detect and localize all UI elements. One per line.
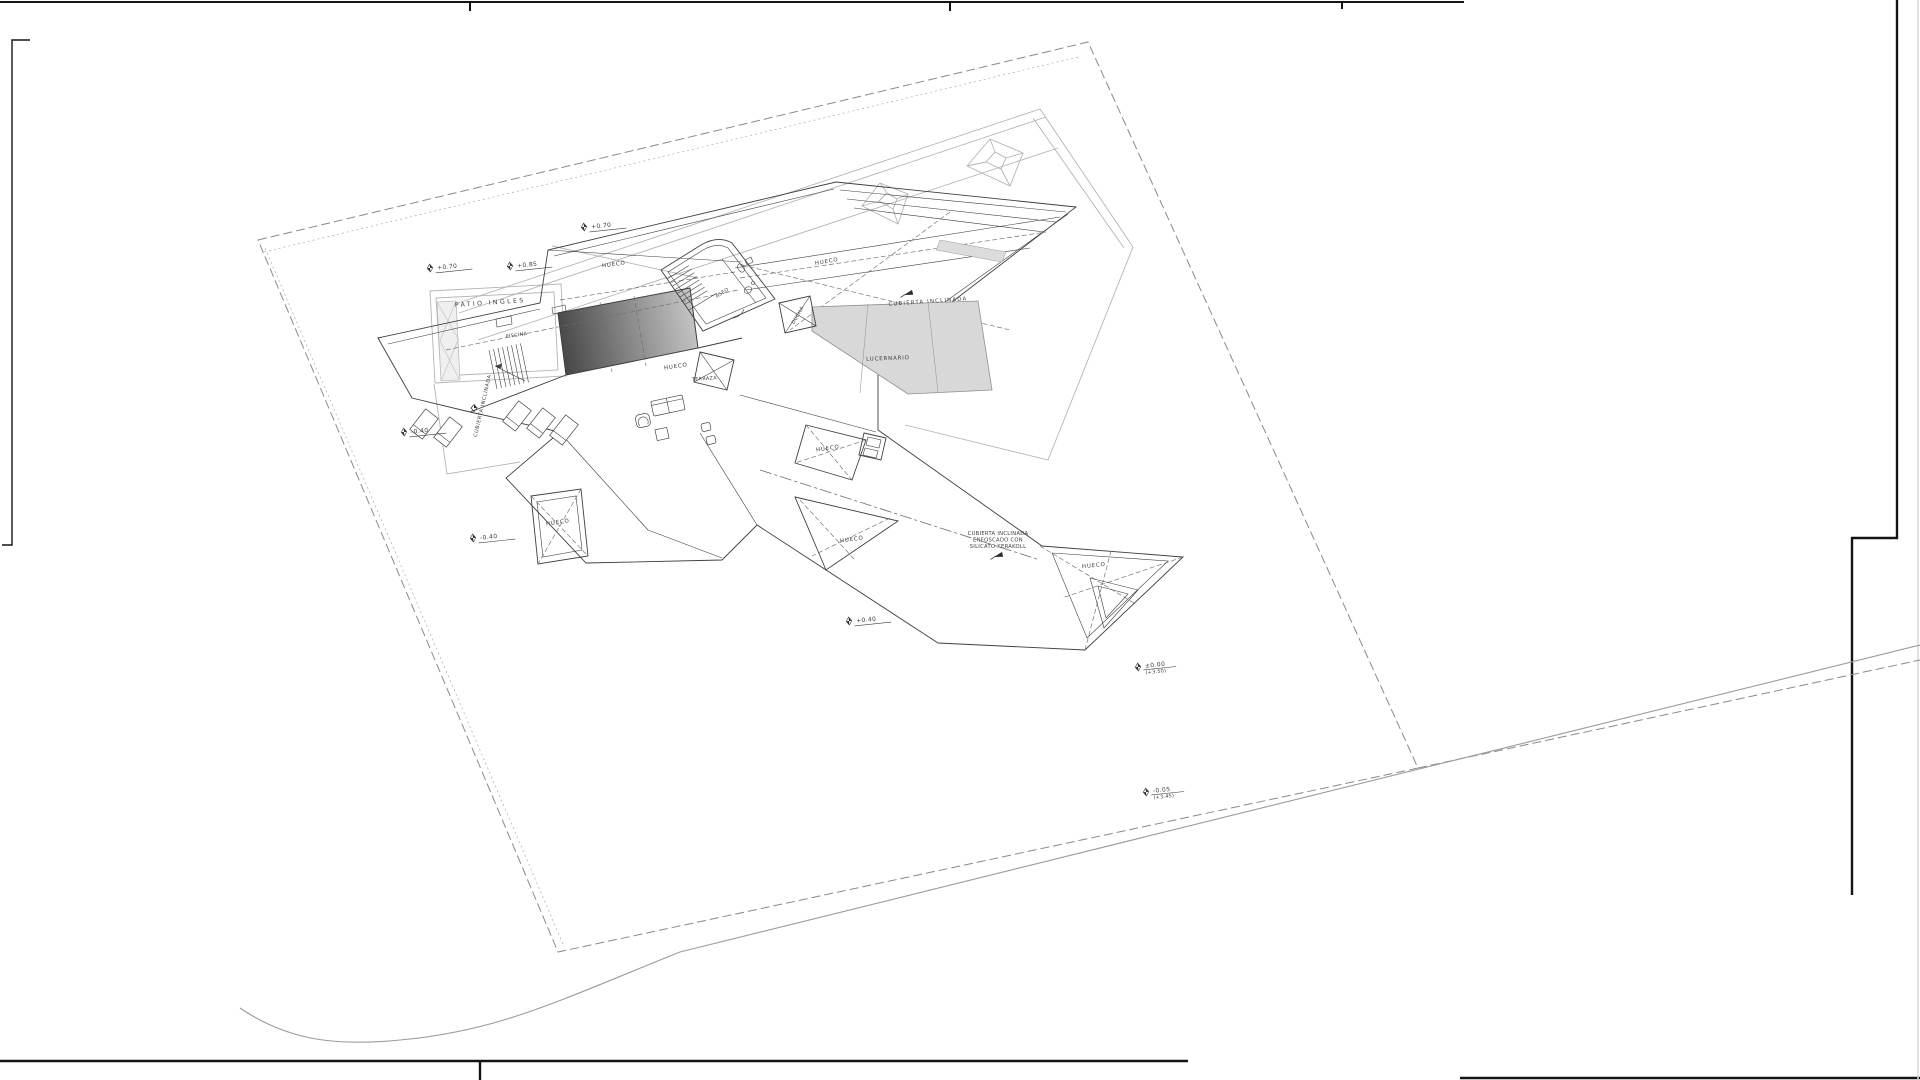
stool bbox=[706, 435, 716, 445]
annotations: +0.70 +0.70 +0.85 -0.40 -0.40 +0.40 bbox=[401, 219, 1185, 803]
southwest-wing bbox=[531, 436, 722, 564]
hueco-quad-outline bbox=[795, 425, 866, 480]
roof-outer-outline bbox=[378, 182, 1183, 650]
sun-lounger bbox=[503, 401, 532, 431]
frame-top-line bbox=[0, 2, 1464, 11]
aseo-label: ASEO bbox=[715, 287, 731, 300]
lucernario-skylight bbox=[812, 301, 992, 394]
parcel-boundary-line bbox=[258, 42, 1418, 952]
slope-direction-icon bbox=[989, 552, 1003, 560]
frame-bottom-left-line bbox=[0, 1061, 1188, 1080]
hueco-label: HUECO bbox=[664, 362, 688, 371]
level-value: +0.40 bbox=[856, 616, 877, 625]
sofa bbox=[651, 395, 685, 416]
ducha-label: DUCHA bbox=[791, 305, 806, 325]
level-marker: ±0.00 (+3.50) bbox=[1135, 659, 1177, 677]
stairs-arrow-head bbox=[495, 364, 502, 370]
sheet-frame bbox=[0, 0, 1920, 1080]
sun-lounger bbox=[434, 417, 463, 447]
se-band-edges bbox=[700, 395, 876, 525]
patio-ingles-label: PATIO INGLES bbox=[455, 297, 526, 309]
site-boundary bbox=[240, 42, 1920, 1042]
roof-vent bbox=[859, 433, 886, 460]
patio-hatch-strip bbox=[437, 301, 460, 381]
building-roof bbox=[378, 182, 1183, 650]
level-value: +0.70 bbox=[437, 263, 458, 272]
coffee-table bbox=[655, 427, 669, 440]
level-marker: +0.40 bbox=[846, 613, 892, 627]
level-value: +0.70 bbox=[591, 222, 612, 231]
exterior-stairs bbox=[489, 343, 529, 389]
note-line-3: SILICATO KERAKOLL bbox=[970, 544, 1027, 550]
level-marker: +0.70 bbox=[427, 260, 473, 274]
road-edge-curve bbox=[240, 645, 1920, 1042]
drawing-sheet: +0.70 +0.70 +0.85 -0.40 -0.40 +0.40 bbox=[0, 0, 1920, 1080]
hueco-triangle-outline bbox=[795, 497, 898, 570]
underlay-north-wall-inner bbox=[459, 117, 1046, 313]
hueco-label: HUECO bbox=[602, 260, 626, 269]
hueco-label: HUECO bbox=[546, 518, 570, 527]
parcel-boundary-extension bbox=[1418, 660, 1920, 768]
se-triangle-hueco bbox=[1040, 546, 1183, 650]
hueco-label: HUECO bbox=[840, 535, 864, 544]
lucernario-glass bbox=[812, 301, 992, 394]
southeast-wing bbox=[700, 395, 1183, 650]
band-notch-1 bbox=[496, 316, 512, 327]
parcel-boundary-inner-dash-top bbox=[264, 57, 1078, 252]
parcel-boundary-inner-dash-left bbox=[265, 248, 563, 944]
underlay-north-wall bbox=[452, 109, 1040, 305]
level-marker: -0.40 bbox=[470, 530, 516, 544]
roof-wedge-line bbox=[548, 250, 742, 262]
hueco-label: HUECO bbox=[1082, 562, 1106, 570]
roof-plan-svg: +0.70 +0.70 +0.85 -0.40 -0.40 +0.40 bbox=[0, 0, 1920, 1080]
pool-band bbox=[446, 272, 742, 412]
terrace-hueco-box bbox=[694, 352, 734, 390]
stool bbox=[701, 422, 711, 432]
sw-hueco-inner bbox=[537, 496, 582, 557]
frame-left-inner-line bbox=[2, 40, 30, 545]
frame-right-step-line bbox=[1852, 0, 1897, 895]
roof-note: CUBIERTA INCLINADA ENFOSCADO CON SILICAT… bbox=[968, 531, 1029, 550]
sw-band-edge bbox=[563, 436, 722, 558]
aseo-drain bbox=[752, 282, 755, 285]
piscina-pool-water bbox=[558, 288, 698, 375]
terrace-furniture bbox=[410, 395, 717, 447]
level-value: -0.40 bbox=[480, 533, 498, 542]
underlay-east-wall bbox=[1033, 109, 1133, 248]
cubierta-inclinada-vertical-label: CUBIERTA INCLINADA bbox=[473, 374, 493, 438]
level-marker: -0.05 (+3.45) bbox=[1143, 784, 1185, 802]
level-value: +0.85 bbox=[517, 261, 538, 270]
aseo-toilet bbox=[736, 263, 746, 274]
parapet-northeast-edge bbox=[840, 190, 1066, 232]
level-marker: +0.70 bbox=[581, 219, 627, 233]
armchair bbox=[635, 413, 651, 429]
slope-direction-icon bbox=[899, 290, 913, 298]
hueco-label: HUECO bbox=[815, 257, 839, 267]
piscina-label: PISCINA bbox=[505, 331, 528, 340]
note-line-1: CUBIERTA INCLINADA bbox=[968, 531, 1029, 537]
note-line-2: ENFOSCADO CON bbox=[973, 538, 1023, 544]
